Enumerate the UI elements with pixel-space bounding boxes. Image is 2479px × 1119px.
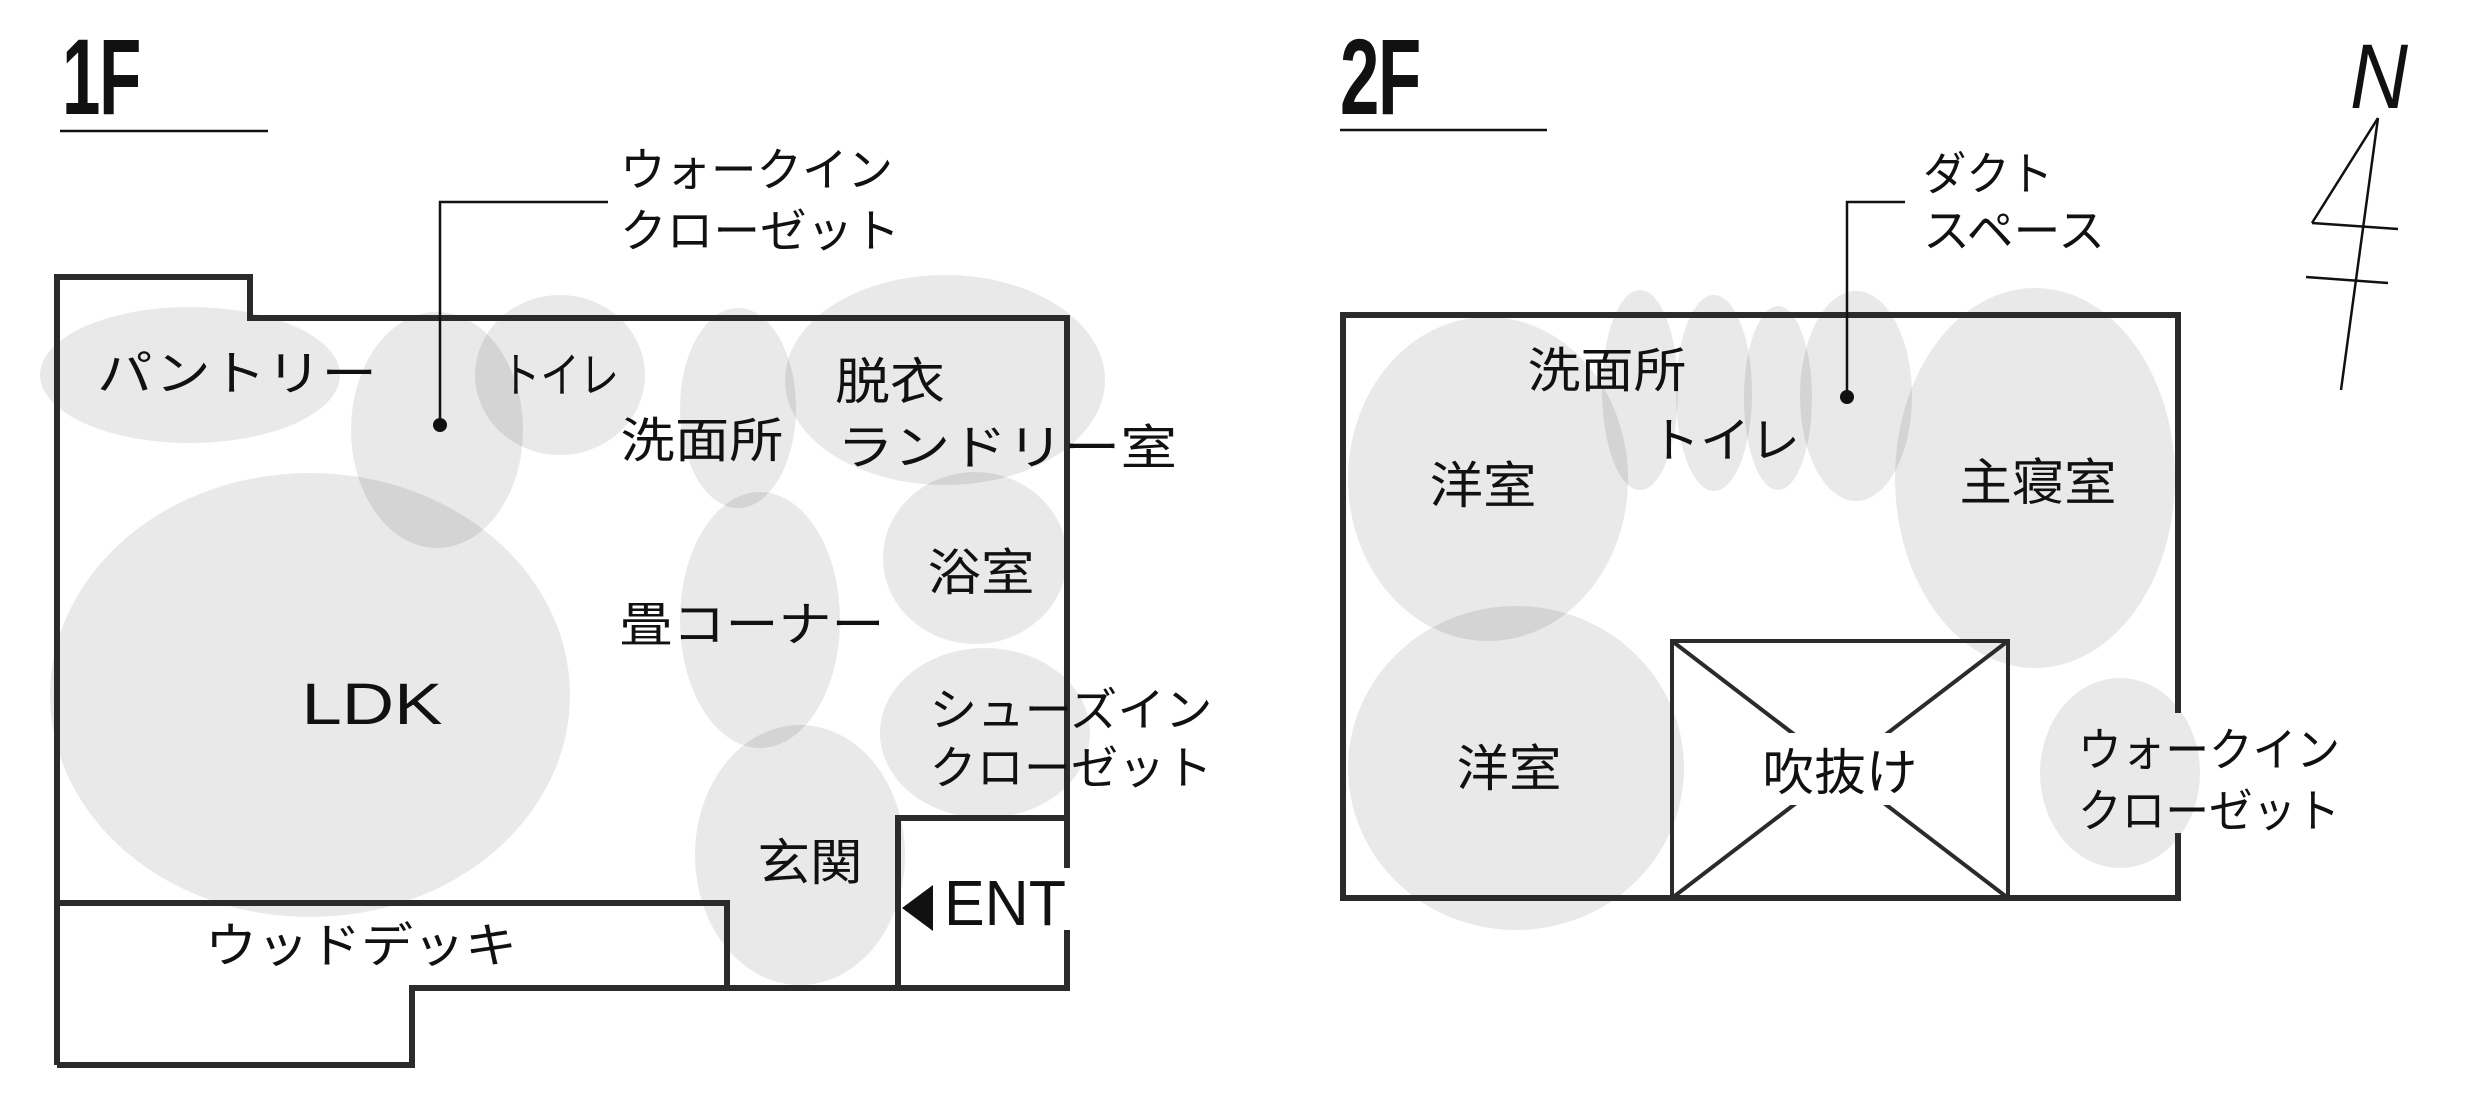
callout1-leader-dot	[433, 418, 447, 432]
room-label-toilet-1f: トイレ	[501, 350, 619, 403]
room-label-bathroom: 浴室	[928, 545, 1035, 601]
room-label-laundry: ランドリー室	[837, 422, 1177, 475]
north-compass: N	[2306, 26, 2408, 390]
callout-walk-in-closet-line2: クローゼット	[620, 205, 900, 257]
room-label-undressing: 脱衣	[835, 354, 945, 410]
floor-plan-page: N 1F ウォークイン クローゼット パントリー トイレ 脱衣 洗面所 ランドリ…	[0, 0, 2479, 1119]
room-label-western-room-upper: 洋室	[1430, 458, 1537, 514]
room-label-atrium: 吹抜け	[1763, 745, 1918, 801]
floor-plan-drawing: N 1F ウォークイン クローゼット パントリー トイレ 脱衣 洗面所 ランドリ…	[0, 0, 2479, 1119]
room-label-shoe-closet-line2: クローゼット	[930, 742, 1213, 794]
room-label-ldk: LDK	[302, 672, 443, 737]
compass-needle-icon	[2306, 118, 2398, 390]
callout-duct-space-line2: スペース	[1923, 205, 2105, 257]
callout-walk-in-closet-line1: ウォークイン	[620, 144, 893, 196]
room-label-wood-deck: ウッドデッキ	[205, 920, 517, 973]
washroom-blob	[680, 308, 796, 508]
compass-north-label: N	[2350, 26, 2408, 128]
callout2-leader-dot	[1840, 390, 1854, 404]
room-label-entrance-hall: 玄関	[758, 835, 863, 891]
room-label-shoe-closet-line1: シューズイン	[930, 684, 1213, 736]
room-label-walk-in-closet2-line1: ウォークイン	[2078, 724, 2340, 776]
room-label-washroom-1f: 洗面所	[621, 415, 784, 468]
room-label-toilet-2f: トイレ	[1650, 415, 1800, 468]
room-label-master-bedroom: 主寝室	[1960, 455, 2117, 511]
callout-duct-space-line1: ダクト	[1923, 148, 2053, 200]
room-label-pantry: パントリー	[97, 348, 377, 401]
entrance-ent-label: ENT	[944, 867, 1066, 939]
room-label-walk-in-closet2-line2: クローゼット	[2078, 785, 2340, 837]
entrance-arrow-icon	[902, 885, 933, 931]
floor2-room-blobs	[1348, 288, 2200, 930]
floor2-title: 2F	[1340, 16, 1420, 137]
room-label-western-room-lower: 洋室	[1457, 741, 1562, 797]
floor1-title: 1F	[62, 16, 140, 137]
room-label-tatami-corner: 畳コーナー	[620, 599, 885, 652]
room-label-washroom-2f: 洗面所	[1528, 345, 1687, 398]
